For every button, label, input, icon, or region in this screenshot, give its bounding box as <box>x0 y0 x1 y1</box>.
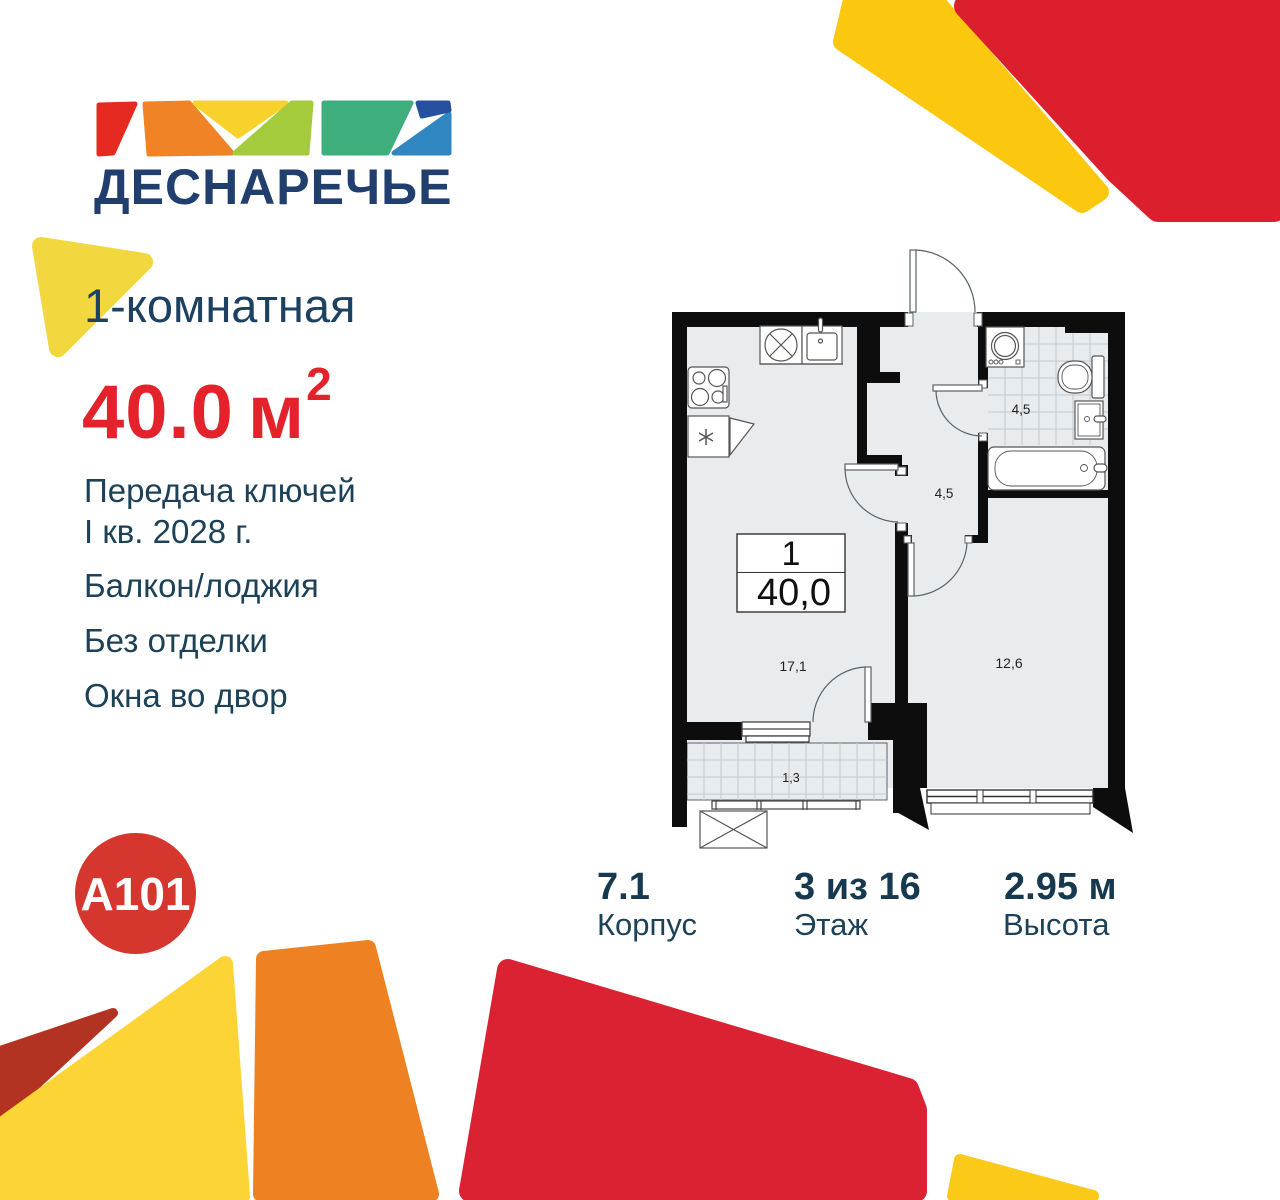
bedroom-window-icon <box>927 790 1093 814</box>
feature-keys-line1: Передача ключей <box>84 472 356 510</box>
decor-red-polygon-bottom <box>470 970 916 1191</box>
area-unit: м <box>248 370 304 455</box>
balcony-rail-icon <box>712 800 860 810</box>
bathtub-icon <box>988 447 1107 490</box>
washbasin-icon <box>1075 401 1106 439</box>
ceiling-label: Высота <box>1003 907 1109 943</box>
floor-value: 3 из 16 <box>794 866 921 909</box>
floor-label: Этаж <box>794 907 868 943</box>
decor-orange-trapezoid <box>261 948 431 1194</box>
area-exponent: 2 <box>306 358 332 410</box>
complex-name: ДЕСНАРЕЧЬЕ <box>94 158 452 216</box>
balcony-window-icon <box>742 722 810 742</box>
developer-name: A101 <box>81 867 191 921</box>
plan-rooms-count: 1 <box>782 535 801 573</box>
hob-unit-icon <box>760 326 802 364</box>
logo-shape-navy <box>418 103 449 116</box>
logo-shape-red <box>99 104 135 154</box>
entrance-floor <box>908 312 977 328</box>
ac-unit-icon <box>700 811 767 848</box>
label-hallway: 4,5 <box>935 486 954 501</box>
stove-icon <box>688 367 729 408</box>
feature-balcony: Балкон/лоджия <box>84 567 319 605</box>
plan-stat-box: 1 40,0 <box>737 534 845 614</box>
label-balcony: 1,3 <box>782 771 799 785</box>
complex-logo-icon <box>96 100 456 160</box>
feature-finishing: Без отделки <box>84 622 268 660</box>
decor-yellow-triangle-bottom-right <box>953 1160 1093 1196</box>
plan-total-area: 40,0 <box>757 572 831 614</box>
area-value: 40.0 <box>82 370 234 455</box>
building-label: Корпус <box>597 907 697 943</box>
listing-flyer: ДЕСНАРЕЧЬЕ 1-комнатная 40.0м2 Передача к… <box>0 0 1280 1200</box>
logo-shape-teal <box>324 103 411 153</box>
label-kitchen-living: 17,1 <box>779 658 806 674</box>
label-bedroom: 12,6 <box>995 655 1022 671</box>
floor-plan: 1 40,0 17,1 12,6 4,5 4,5 1,3 <box>660 240 1140 880</box>
listing-area: 40.0м2 <box>82 357 332 456</box>
washing-machine-icon <box>986 327 1024 367</box>
listing-title: 1-комнатная <box>84 278 355 333</box>
feature-windows: Окна во двор <box>84 677 288 715</box>
developer-logo: A101 <box>75 833 196 954</box>
entrance-door-icon <box>910 250 975 312</box>
ceiling-value: 2.95 м <box>1004 866 1117 909</box>
feature-keys-line2: I кв. 2028 г. <box>84 513 252 551</box>
building-value: 7.1 <box>597 866 650 909</box>
label-bathroom: 4,5 <box>1012 402 1031 417</box>
